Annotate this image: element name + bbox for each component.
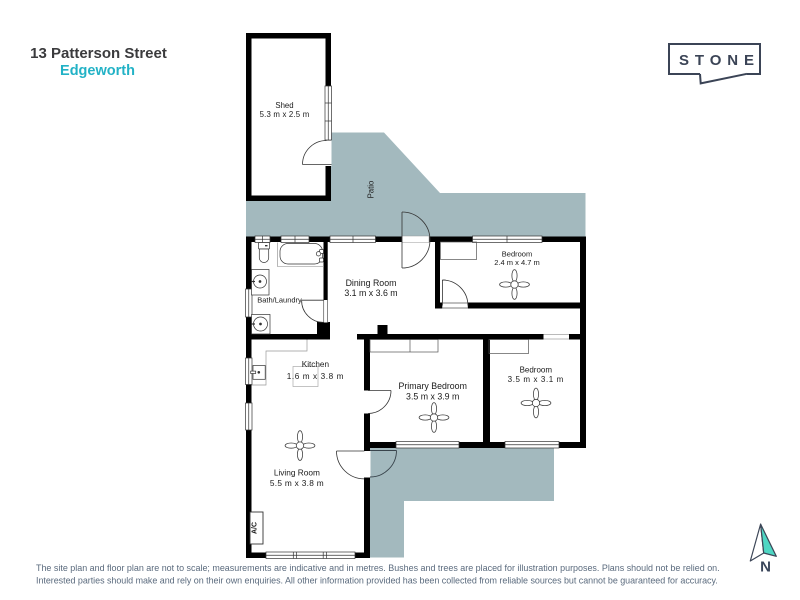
svg-text:Shed: Shed: [275, 101, 293, 110]
svg-text:3.5 m x 3.1 m: 3.5 m x 3.1 m: [508, 375, 564, 384]
svg-text:Primary Bedroom: Primary Bedroom: [398, 381, 466, 391]
svg-text:A/C: A/C: [252, 522, 259, 534]
svg-text:Edgeworth: Edgeworth: [60, 63, 135, 79]
svg-text:3.1 m x 3.6 m: 3.1 m x 3.6 m: [344, 288, 397, 298]
svg-text:Kitchen: Kitchen: [302, 360, 330, 369]
svg-text:The site plan and floor plan a: The site plan and floor plan are not to …: [36, 563, 720, 573]
svg-text:5.3 m x 2.5 m: 5.3 m x 2.5 m: [260, 110, 310, 119]
svg-text:Dining Room: Dining Room: [346, 278, 397, 288]
svg-text:Bedroom: Bedroom: [520, 366, 553, 375]
svg-text:13 Patterson Street: 13 Patterson Street: [30, 45, 167, 62]
svg-text:Bath/Laundry: Bath/Laundry: [257, 295, 302, 304]
svg-text:5.5 m x 3.8 m: 5.5 m x 3.8 m: [270, 478, 324, 488]
svg-text:2.4 m x 4.7 m: 2.4 m x 4.7 m: [494, 258, 539, 267]
svg-text:N: N: [760, 559, 771, 576]
svg-text:1.6 m x 3.8 m: 1.6 m x 3.8 m: [287, 372, 344, 381]
svg-text:3.5 m x 3.9 m: 3.5 m x 3.9 m: [406, 391, 459, 401]
svg-text:Patio: Patio: [367, 180, 376, 198]
svg-text:Living Room: Living Room: [274, 468, 320, 478]
svg-text:Interested parties should make: Interested parties should make and rely …: [36, 575, 718, 585]
svg-text:STONE: STONE: [679, 52, 760, 69]
